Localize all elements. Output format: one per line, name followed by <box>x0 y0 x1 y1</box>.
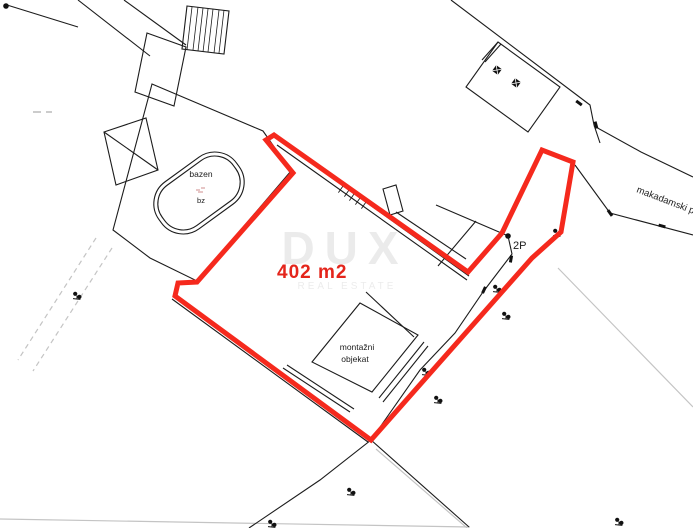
prefab-label-line2: objekat <box>341 354 369 364</box>
plot-area-label: 402 m2 <box>277 262 347 283</box>
survey-point-label: 2P <box>513 240 526 252</box>
survey-point <box>3 3 9 9</box>
pool-code-label: bz <box>197 196 205 205</box>
hatched-square-symbol <box>492 65 502 75</box>
culture-symbol <box>196 188 205 192</box>
tree-symbol <box>268 520 277 528</box>
road-label: makadamski put <box>635 185 693 220</box>
pool-building <box>113 84 291 281</box>
survey-leader-line <box>436 205 506 235</box>
hatched-square-symbol <box>511 78 521 88</box>
cadastral-map: DUX REAL ESTATE <box>0 0 693 528</box>
pool <box>143 141 255 244</box>
tree-symbol <box>615 518 624 526</box>
stairs-building <box>182 6 229 54</box>
tree-symbol <box>434 396 443 404</box>
road-upper-edge <box>594 126 693 177</box>
survey-markers <box>481 100 666 294</box>
tree-symbol <box>347 488 356 496</box>
map-drawing: DUX REAL ESTATE <box>0 0 693 528</box>
tree-symbol <box>502 312 511 320</box>
top-right-building <box>466 42 560 132</box>
prefab-label-line1: montažni <box>340 342 375 352</box>
pool-label: bazen <box>189 169 212 179</box>
tree-symbol <box>73 292 82 300</box>
